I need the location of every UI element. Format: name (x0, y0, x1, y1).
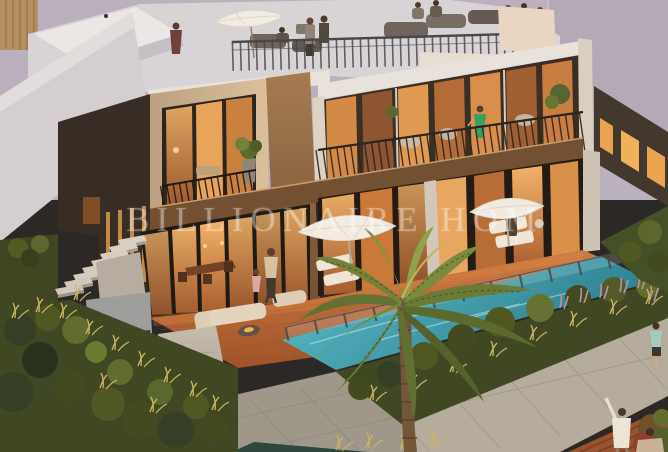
render-image: BILLIONAIRE HOM (0, 0, 668, 452)
dusk-tint (0, 0, 668, 452)
scene-svg (0, 0, 668, 452)
